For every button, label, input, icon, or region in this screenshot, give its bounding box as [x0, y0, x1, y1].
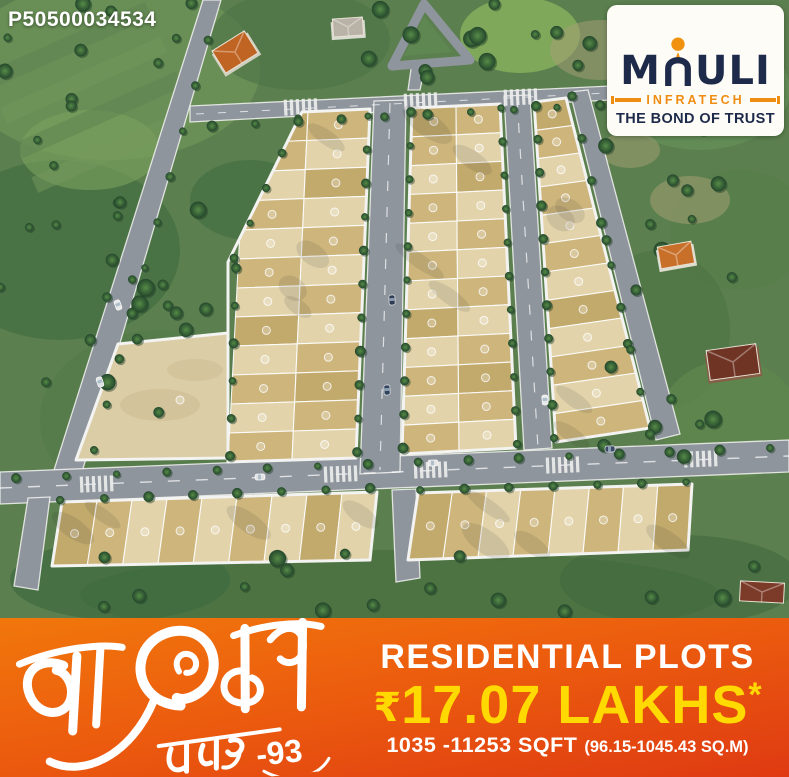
plot-block-south-west-row — [47, 492, 383, 566]
project-subtitle-text: नगर — [0, 618, 1, 619]
mauli-a-pin-icon — [662, 34, 694, 90]
brand-wordmark: M ULI — [620, 34, 771, 90]
area-sqm: (96.15-1045.43 SQ.M) — [584, 738, 748, 757]
mauli-infratech-logo: M ULI INFRATECH THE BOND OF TRUST — [607, 5, 784, 136]
price-asterisk: * — [748, 678, 761, 712]
plot-block-central-block — [391, 98, 516, 454]
residential-plots-heading: RESIDENTIAL PLOTS — [380, 638, 754, 677]
price-line: ₹ 17.07 LAKHS * — [373, 678, 761, 732]
divider-line-right — [750, 98, 776, 102]
nagar-number: -93 — [254, 732, 304, 773]
area-sqft: 1035 -11253 SQFT — [386, 733, 577, 758]
watermark-code: P50500034534 — [8, 8, 156, 32]
promo-banner: -93 माऊली नगर RESIDENTIAL PLOTS ₹ 17.07 … — [0, 618, 789, 777]
aerial-section: P50500034534 M ULI INFRATECH THE BOND OF… — [0, 0, 789, 618]
brand-letter-m: M — [620, 53, 661, 90]
infratech-row: INFRATECH — [615, 93, 775, 107]
price-value: 17.07 LAKHS — [401, 678, 748, 732]
brand-tagline: THE BOND OF TRUST — [616, 111, 775, 127]
rupee-symbol: ₹ — [373, 688, 401, 728]
brand-letters-uli: ULI — [695, 53, 771, 90]
poster-root: P50500034534 M ULI INFRATECH THE BOND OF… — [0, 0, 789, 777]
project-logotype: -93 माऊली नगर — [0, 618, 352, 777]
infratech-label: INFRATECH — [646, 93, 744, 107]
divider-line-left — [615, 98, 641, 102]
mauli-devanagari-script: -93 — [0, 618, 356, 777]
offer-details: RESIDENTIAL PLOTS ₹ 17.07 LAKHS * 1035 -… — [352, 618, 789, 777]
project-title-text: माऊली — [0, 618, 1, 619]
area-line: 1035 -11253 SQFT (96.15-1045.43 SQ.M) — [386, 733, 748, 758]
